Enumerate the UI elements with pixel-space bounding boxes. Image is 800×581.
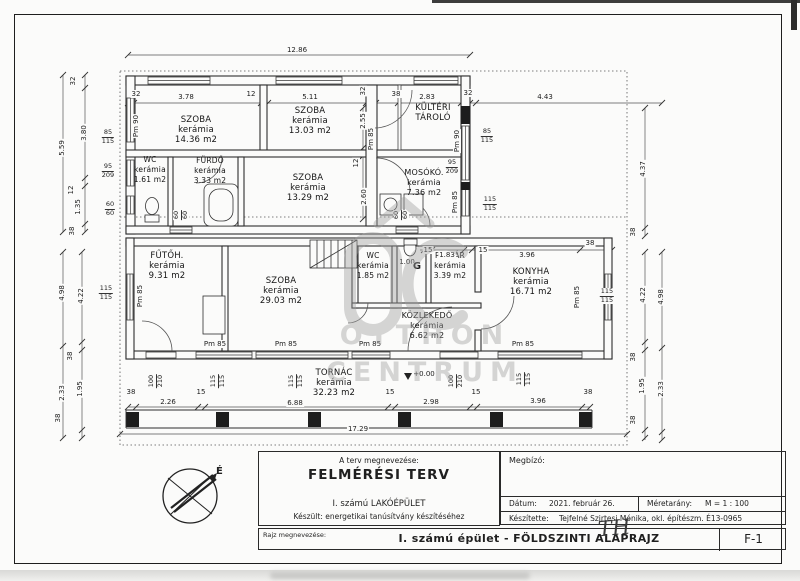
plan-purpose: Készült: energetikai tanúsítvány készíté… xyxy=(259,512,499,521)
dim-label: Pm 85 xyxy=(451,190,459,214)
dim-label: 3.96 xyxy=(529,397,547,405)
dim-label: 5.11 xyxy=(301,93,319,101)
dim-label: 15 xyxy=(471,388,482,396)
author-caption: Készítette: xyxy=(509,514,549,523)
drawing-title-bar: Rajz megnevezése: I. számú épület - FÖLD… xyxy=(258,528,786,550)
dim-label: Pm 90 xyxy=(453,129,461,153)
dim-label: 38 xyxy=(54,413,62,424)
dim-label: 12 xyxy=(352,158,360,169)
dim-label: 32 xyxy=(131,90,142,98)
dim-label: 15 xyxy=(478,246,489,254)
dim-label: 6.88 xyxy=(286,399,304,407)
dim-label: 3.96 xyxy=(518,251,536,259)
dim-label: 2.33 xyxy=(657,380,665,398)
room-label: WCkerámia1.85 m2 xyxy=(357,251,390,281)
title-block-plan: A terv megnevezése: FELMÉRÉSI TERV I. sz… xyxy=(258,451,500,526)
stairs xyxy=(310,240,357,268)
dim-label: 2.26 xyxy=(159,398,177,406)
compass-icon xyxy=(163,469,217,523)
dim-label: 15 xyxy=(423,246,434,254)
dim-label: Pm 85 xyxy=(573,285,581,309)
dim-label: 12 xyxy=(246,90,257,98)
fraction-label: 95209 xyxy=(446,159,458,175)
fraction-label: 100210 xyxy=(448,374,464,388)
dim-label: Pm 85 xyxy=(511,340,535,348)
room-label: KONYHAkerámia16.71 m2 xyxy=(510,267,552,297)
fraction-label: 85115 xyxy=(481,128,493,144)
dim-label: Pm 85 xyxy=(274,340,298,348)
dim-label: 38 xyxy=(585,239,596,247)
fraction-label: 6060 xyxy=(173,210,189,220)
dim-label: 38 xyxy=(629,415,637,426)
dim-label: 32 xyxy=(69,76,77,87)
dim-label: 38 xyxy=(583,388,594,396)
dim-label: Pm 90 xyxy=(132,114,140,138)
dim-label: 2.33 xyxy=(58,384,66,402)
room-label: SZOBAkerámia29.03 m2 xyxy=(260,276,302,306)
dim-label: Pm 85 xyxy=(358,340,382,348)
date-value: 2021. február 26. xyxy=(549,499,615,508)
author-value: Tejfelné Szirtesi Mónika, okl. építészm.… xyxy=(559,514,742,523)
dim-label: 1.95 xyxy=(76,380,84,398)
sheet-number: F-1 xyxy=(719,529,787,551)
room-label: FŰTŐH.kerámia9.31 m2 xyxy=(149,251,186,281)
dim-label: 4.22 xyxy=(77,287,85,305)
cell-divider xyxy=(638,496,639,511)
dim-label: 12 xyxy=(67,185,75,196)
dim-label: 2.60 xyxy=(360,188,368,206)
date-caption: Dátum: xyxy=(509,499,537,508)
dim-label: 38 xyxy=(629,227,637,238)
room-label: WCkerámia1.61 m2 xyxy=(134,155,167,185)
title-block-meta: Megbízó: Dátum: 2021. február 26. Méreta… xyxy=(500,451,786,525)
dim-label: 38 xyxy=(68,226,76,237)
room-label: MOSÓKÓ.kerámia7.36 m2 xyxy=(404,168,443,198)
fraction-label: 85115 xyxy=(102,129,114,145)
dim-label: 2.98 xyxy=(422,398,440,406)
client-caption: Megbízó: xyxy=(509,456,545,465)
north-label: É xyxy=(216,466,223,477)
fraction-label: 6060 xyxy=(105,201,115,217)
dim-label: 38 xyxy=(126,388,137,396)
dim-label: 2.55 xyxy=(359,112,367,130)
fraction-label: 115115 xyxy=(600,288,614,304)
dim-label: 38 xyxy=(66,351,74,362)
dim-label: 32 xyxy=(359,86,367,97)
author-row: Készítette: Tejfelné Szirtesi Mónika, ok… xyxy=(501,511,785,526)
dim-label: G xyxy=(412,263,422,271)
fraction-label: 6060 xyxy=(393,210,409,220)
room-label: SZOBAkerámia13.29 m2 xyxy=(287,173,329,203)
dim-label: 5.59 xyxy=(58,139,66,157)
room-label: SZOBAkerámia14.36 m2 xyxy=(175,115,217,145)
dim-label: 38 xyxy=(629,352,637,363)
dim-label: Pm 85 xyxy=(136,284,144,308)
dim-label: 1.35 xyxy=(74,198,82,216)
dim-label: 15 xyxy=(196,388,207,396)
fraction-label: 115115 xyxy=(516,372,532,386)
scale-caption: Méretarány: xyxy=(647,499,692,508)
dim-label: 4.98 xyxy=(657,288,665,306)
fraction-label: 115115 xyxy=(288,374,304,388)
dim-label: 3.80 xyxy=(80,124,88,142)
dim-label: 2.83 xyxy=(418,93,436,101)
dim-label: 1.95 xyxy=(638,377,646,395)
dim-label: 4.22 xyxy=(639,286,647,304)
dim-label: +0.00 xyxy=(412,370,435,378)
dim-label: 3.78 xyxy=(177,93,195,101)
scale-value: M = 1 : 100 xyxy=(705,499,749,508)
plan-name: FELMÉRÉSI TERV xyxy=(259,467,499,483)
fraction-label: 95209 xyxy=(102,163,114,179)
dim-label: 12.86 xyxy=(286,46,308,54)
dim-label: 17.29 xyxy=(347,425,369,433)
dim-label: 15 xyxy=(385,388,396,396)
fraction-label: 115115 xyxy=(483,196,497,212)
fraction-label: 100210 xyxy=(148,374,164,388)
dim-label: 4.37 xyxy=(639,160,647,178)
dim-label: Pm 85 xyxy=(203,340,227,348)
signature: TH xyxy=(597,515,631,542)
drawing-caption: Rajz megnevezése: xyxy=(263,531,326,539)
dim-label: 4.43 xyxy=(536,93,554,101)
dim-label: 32 xyxy=(463,89,474,97)
room-label: TORNÁCkerámia32.23 m2 xyxy=(313,368,355,398)
dim-label: Pm 85 xyxy=(367,127,375,151)
fraction-label: 115115 xyxy=(99,285,113,301)
drawing-title: I. számú épület - FÖLDSZINTI ALAPRAJZ xyxy=(339,532,719,545)
date-scale-row: Dátum: 2021. február 26. Méretarány: M =… xyxy=(501,496,785,511)
plan-name-caption: A terv megnevezése: xyxy=(259,456,499,465)
room-label: SZOBAkerámia13.03 m2 xyxy=(289,106,331,136)
dim-label: 1.83 xyxy=(438,251,456,259)
toilet-icon xyxy=(146,198,159,215)
dim-label: 38 xyxy=(391,90,402,98)
dim-label: 4.98 xyxy=(58,284,66,302)
building-name: I. számú LAKÓÉPÜLET xyxy=(259,499,499,509)
level-marker-icon xyxy=(404,373,412,380)
room-label: KÖZLEKEDŐkerámia6.62 m2 xyxy=(402,311,453,341)
fraction-label: 115115 xyxy=(210,374,226,388)
room-label: FÜRDŐkerámia3.33 m2 xyxy=(194,156,227,186)
room-label: KÜLTÉRITÁROLÓ xyxy=(415,103,451,123)
